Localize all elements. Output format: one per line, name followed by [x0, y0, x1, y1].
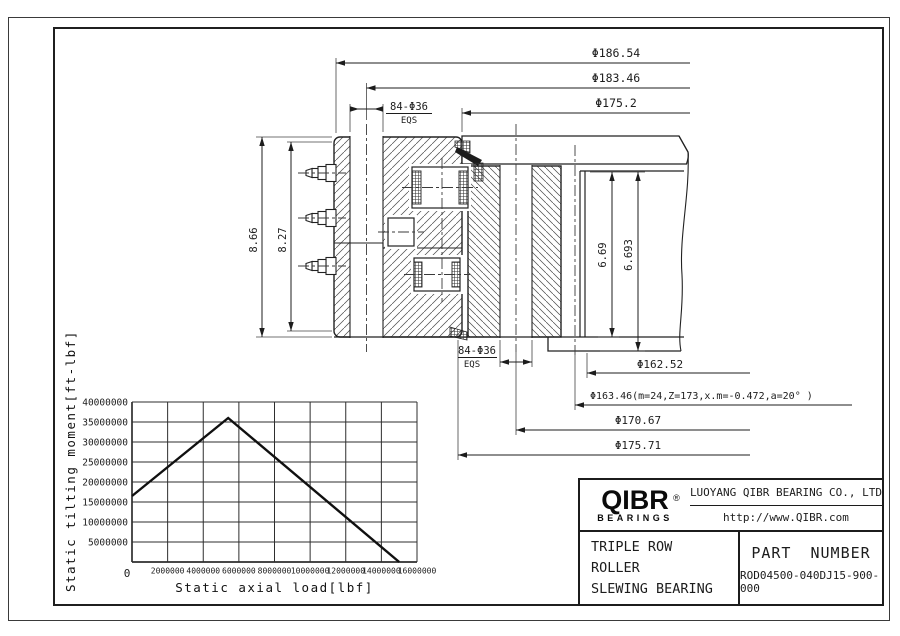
y-tick-label: 30000000: [82, 438, 128, 449]
product-line: ROLLER: [591, 558, 738, 579]
x-tick-label: 2000000: [151, 567, 185, 576]
dim-bolt-top-eqs: EQS: [401, 116, 417, 126]
part-number-label: PART NUMBER: [751, 544, 870, 562]
dim-gear-6-69: 6.69: [597, 242, 609, 267]
x-tick-label: 4000000: [186, 567, 220, 576]
y-tick-label: 5000000: [88, 538, 128, 549]
dim-dia-175-71: Φ175.71: [615, 439, 661, 452]
x-tick-label: 16000000: [398, 567, 437, 576]
y-tick-label: 20000000: [82, 478, 128, 489]
dim-height-8-27: 8.27: [277, 227, 289, 252]
title-block-header-row: QIBR® BEARINGS LUOYANG QIBR BEARING CO.,…: [580, 480, 882, 532]
product-line: TRIPLE ROW: [591, 537, 738, 558]
dim-gear-spec: Φ163.46(m=24,Z=173,x.m=-0.472,a=20° ): [590, 391, 813, 402]
drawing-sheet: Φ186.54 Φ183.46 Φ175.2 84-Φ36 EQS 8.66 8…: [0, 0, 900, 636]
dim-dia-183-46: Φ183.46: [592, 71, 641, 85]
y-tick-label: 25000000: [82, 458, 128, 469]
inner-ring-section: [468, 165, 561, 338]
company-website: http://www.QIBR.com: [690, 506, 882, 531]
dim-bolt-bottom-eqs: EQS: [464, 360, 480, 370]
part-number-cell: PART NUMBER ROD04500-040DJ15-900-000: [740, 532, 882, 606]
product-line: SLEWING BEARING: [591, 579, 738, 600]
registered-mark-icon: ®: [673, 485, 680, 511]
y-tick-label: 10000000: [82, 518, 128, 529]
company-name: LUOYANG QIBR BEARING CO., LTD: [690, 480, 882, 506]
company-info: LUOYANG QIBR BEARING CO., LTD http://www…: [690, 480, 882, 530]
chart-x-axis-title: Static axial load[lbf]: [132, 580, 417, 595]
x-tick-label: 14000000: [362, 567, 401, 576]
load-chart: 5000000100000001500000020000000250000003…: [82, 398, 436, 581]
dim-dia-162-52: Φ162.52: [637, 358, 683, 371]
y-tick-label: 40000000: [82, 398, 128, 409]
dim-bolt-bottom: 84-Φ36: [458, 345, 496, 357]
x-tick-label: 8000000: [258, 567, 292, 576]
dim-bolt-top: 84-Φ36: [390, 101, 428, 113]
part-number-value: ROD04500-040DJ15-900-000: [740, 569, 882, 595]
x-tick-label: 12000000: [326, 567, 365, 576]
title-block-product-row: TRIPLE ROW ROLLER SLEWING BEARING PART N…: [580, 532, 882, 606]
load-capacity-curve: [132, 418, 399, 562]
y-tick-label: 15000000: [82, 498, 128, 509]
dim-dia-175-2: Φ175.2: [595, 96, 637, 110]
dim-gear-6-693: 6.693: [623, 239, 635, 271]
grease-fittings: [306, 165, 336, 275]
dim-dia-186-54: Φ186.54: [592, 46, 641, 60]
x-tick-label: 10000000: [291, 567, 330, 576]
x-tick-label: 0: [124, 567, 131, 580]
chart-y-axis-title: Static tilting moment[ft-lbf]: [63, 330, 78, 592]
dim-height-8-66: 8.66: [248, 227, 260, 252]
y-tick-label: 35000000: [82, 418, 128, 429]
dim-dia-170-67: Φ170.67: [615, 414, 661, 427]
product-description: TRIPLE ROW ROLLER SLEWING BEARING: [580, 532, 740, 606]
title-block: QIBR® BEARINGS LUOYANG QIBR BEARING CO.,…: [578, 478, 884, 606]
brand-wordmark: QIBR®: [601, 487, 669, 513]
company-logo: QIBR® BEARINGS: [580, 480, 690, 530]
x-tick-label: 6000000: [222, 567, 256, 576]
